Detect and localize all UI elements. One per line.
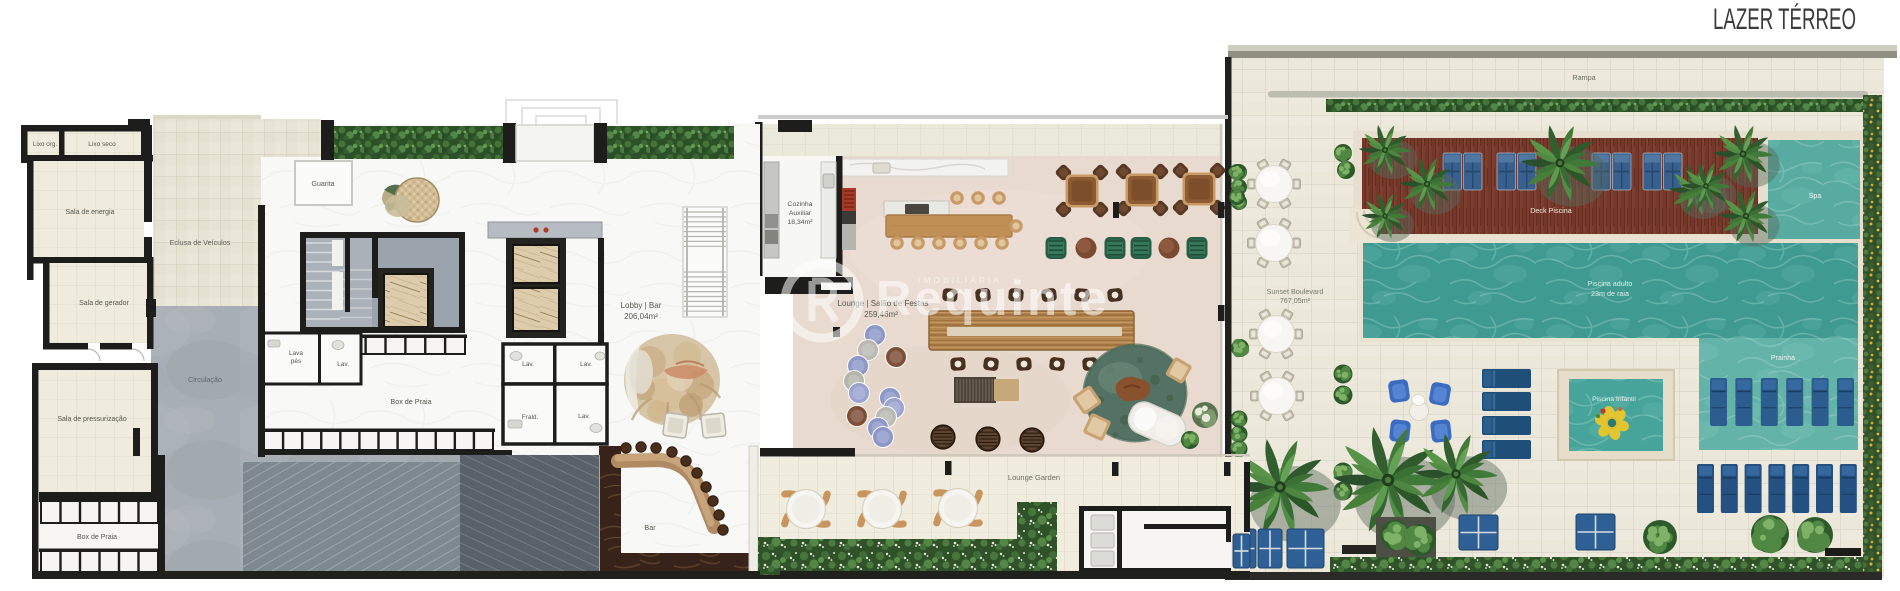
svg-text:Piscina Infantil: Piscina Infantil <box>1592 396 1636 403</box>
svg-text:Guarita: Guarita <box>312 181 335 188</box>
svg-text:Deck Piscina: Deck Piscina <box>1530 206 1572 215</box>
svg-text:Sala de energia: Sala de energia <box>65 209 114 216</box>
svg-text:Cozinha: Cozinha <box>788 201 813 208</box>
svg-text:Lixo org.: Lixo org. <box>33 141 57 148</box>
svg-text:Lounge Garden: Lounge Garden <box>1008 473 1060 482</box>
svg-text:Piscina adulto: Piscina adulto <box>1588 279 1633 288</box>
svg-text:Sala de gerador: Sala de gerador <box>79 300 129 307</box>
svg-text:Lixo seco: Lixo seco <box>88 141 116 148</box>
svg-text:Sala de pressurização: Sala de pressurização <box>57 416 126 423</box>
svg-text:Circulação: Circulação <box>188 375 222 384</box>
svg-text:Box de Praia: Box de Praia <box>77 534 117 541</box>
svg-text:Sunset Boulevard: Sunset Boulevard <box>1267 287 1324 296</box>
svg-text:Bar: Bar <box>644 523 656 532</box>
svg-text:206,04m²: 206,04m² <box>624 312 658 321</box>
svg-text:Rampa: Rampa <box>1572 73 1595 82</box>
svg-text:Auxiliar: Auxiliar <box>789 210 812 217</box>
svg-text:18,34m²: 18,34m² <box>788 219 814 226</box>
svg-text:Lav.: Lav. <box>337 361 349 368</box>
svg-text:Requinte: Requinte <box>876 272 1110 326</box>
svg-text:Prainha: Prainha <box>1771 355 1795 362</box>
svg-text:Lav.: Lav. <box>522 361 534 368</box>
svg-text:Lav.: Lav. <box>580 361 592 368</box>
svg-text:LAZER TÉRREO: LAZER TÉRREO <box>1713 3 1856 36</box>
svg-text:pés: pés <box>291 358 302 365</box>
svg-text:767,05m²: 767,05m² <box>1280 296 1311 305</box>
svg-text:Lav.: Lav. <box>578 413 590 420</box>
svg-text:23m de raia: 23m de raia <box>1591 289 1629 298</box>
svg-text:Box de Praia: Box de Praia <box>390 397 431 406</box>
svg-text:Frald.: Frald. <box>522 414 539 421</box>
svg-text:Eclusa de Veículos: Eclusa de Veículos <box>170 238 231 247</box>
svg-text:Lava: Lava <box>289 350 303 357</box>
svg-text:Spa: Spa <box>1809 193 1822 200</box>
svg-text:Lobby | Bar: Lobby | Bar <box>621 301 662 310</box>
